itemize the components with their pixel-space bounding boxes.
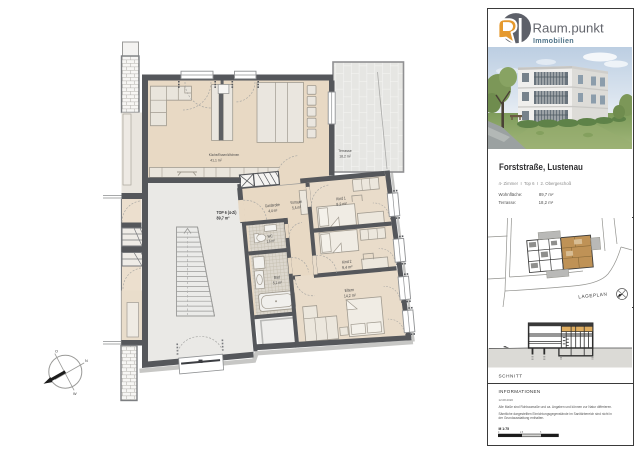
svg-text:5,4 m²: 5,4 m² [292,205,302,211]
svg-text:4,4 m²: 4,4 m² [268,208,278,214]
svg-text:1,6 m²: 1,6 m² [266,238,275,244]
svg-text:Terrasse: Terrasse [338,148,352,153]
svg-text:41,1 m²: 41,1 m² [210,158,222,163]
svg-text:W: W [73,392,77,396]
svg-text:18,2 m²: 18,2 m² [339,154,351,159]
svg-text:SCHNITT: SCHNITT [499,374,523,379]
svg-text:Küche/Essen/Wohnen: Küche/Essen/Wohnen [209,152,240,157]
svg-text:9,4 m²: 9,4 m² [342,264,353,270]
svg-text:N: N [85,359,88,363]
svg-text:8,2 m²: 8,2 m² [336,201,347,207]
svg-text:5,1 m²: 5,1 m² [273,280,283,286]
svg-text:O: O [55,350,58,354]
svg-text:Immobilien: Immobilien [533,36,574,45]
svg-text:Raum.punkt: Raum.punkt [533,21,604,36]
svg-text:TOP 6 (4-Zi): TOP 6 (4-Zi) [217,210,237,215]
svg-text:89,7 m²: 89,7 m² [217,216,230,221]
